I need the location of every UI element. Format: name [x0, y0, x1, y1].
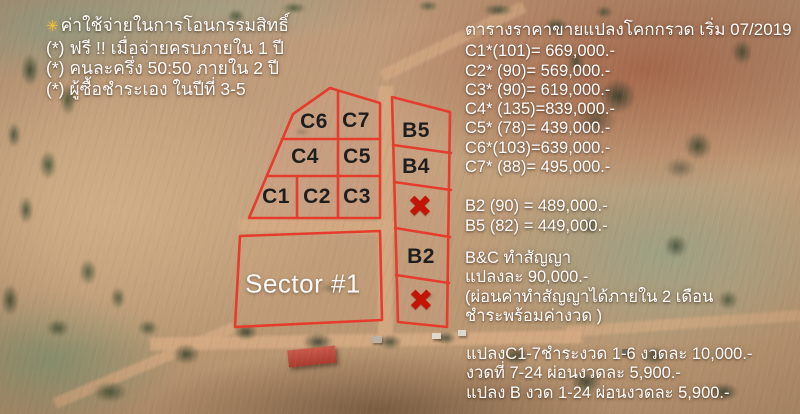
sold-x-mark-1: ✖	[407, 190, 432, 225]
contract-note-line4: ชำระพร้อมค่างวด )	[465, 307, 713, 326]
transfer-fee-notes: ✳ค่าใช้จ่ายในการโอนกรรมสิทธิ์ (*) ฟรี !!…	[46, 15, 289, 99]
price-row-c1: C1*(101)= 669,000.-	[465, 42, 792, 61]
price-table-title: ตารางราคาขายแปลงโคกกรวด เริ่ม 07/2019	[465, 20, 792, 39]
price-row-c3: C3* (90)= 619,000.-	[465, 81, 792, 100]
land-sale-aerial-ad: C1 C2 C3 C4 C5 C6 C7 B5 B4 B2 ✖ ✖ Sector…	[0, 0, 800, 414]
price-row-b5: B5 (82) = 449,000.-	[465, 217, 792, 236]
installment-line3: แปลง B งวด 1-24 ผ่อนงวดละ 5,900.-	[466, 384, 752, 403]
price-table: ตารางราคาขายแปลงโคกกรวด เริ่ม 07/2019 C1…	[465, 20, 792, 236]
sector-1-label: Sector #1	[245, 269, 361, 300]
price-table-gap	[465, 177, 792, 197]
installment-line1: แปลงC1-7ชำระงวด 1-6 งวดละ 10,000.-	[466, 345, 752, 364]
plot-label-c7: C7	[342, 109, 370, 133]
price-row-c2: C2* (90)= 569,000.-	[465, 62, 792, 81]
contract-note-line2: แปลงละ 90,000.-	[465, 268, 713, 287]
contract-note: B&C ทำสัญญา แปลงละ 90,000.- (ผ่อนค่าทำสั…	[465, 249, 713, 326]
price-row-c7: C7* (88)= 495,000.-	[465, 158, 792, 177]
price-row-c4: C4* (135)=839,000.-	[465, 100, 792, 119]
price-row-c5: C5* (78)= 439,000.-	[465, 119, 792, 138]
plot-label-b5: B5	[402, 119, 430, 143]
installment-line2: งวดที่ 7-24 ผ่อนงวดละ 5,900.-	[466, 364, 752, 383]
transfer-fee-note-line4: (*) ผู้ซื้อชำระเอง ในปีที่ 3-5	[46, 79, 289, 100]
plot-label-c3: C3	[343, 185, 371, 209]
transfer-fee-title: ✳ค่าใช้จ่ายในการโอนกรรมสิทธิ์	[46, 15, 289, 38]
plot-label-b2: B2	[407, 245, 435, 269]
sold-x-mark-2: ✖	[408, 284, 433, 319]
plot-label-c5: C5	[343, 145, 371, 169]
transfer-fee-note-line2: (*) ฟรี !! เมื่อจ่ายครบภายใน 1 ปี	[46, 38, 289, 59]
transfer-fee-title-text: ค่าใช้จ่ายในการโอนกรรมสิทธิ์	[61, 15, 289, 35]
contract-note-line1: B&C ทำสัญญา	[465, 249, 713, 268]
contract-note-line3: (ผ่อนค่าทำสัญญาได้ภายใน 2 เดือน	[465, 288, 713, 307]
sun-icon: ✳	[46, 18, 59, 35]
price-row-b2: B2 (90) = 489,000.-	[465, 197, 792, 216]
plot-label-c6: C6	[300, 110, 328, 134]
plot-label-b4: B4	[402, 155, 430, 179]
transfer-fee-note-line3: (*) คนละครึ่ง 50:50 ภายใน 2 ปี	[46, 58, 289, 79]
plot-label-c1: C1	[262, 185, 290, 209]
installment-terms: แปลงC1-7ชำระงวด 1-6 งวดละ 10,000.- งวดที…	[466, 345, 752, 403]
price-row-c6: C6*(103)=639,000.-	[465, 139, 792, 158]
plot-label-c2: C2	[303, 185, 331, 209]
plot-label-c4: C4	[291, 145, 319, 169]
